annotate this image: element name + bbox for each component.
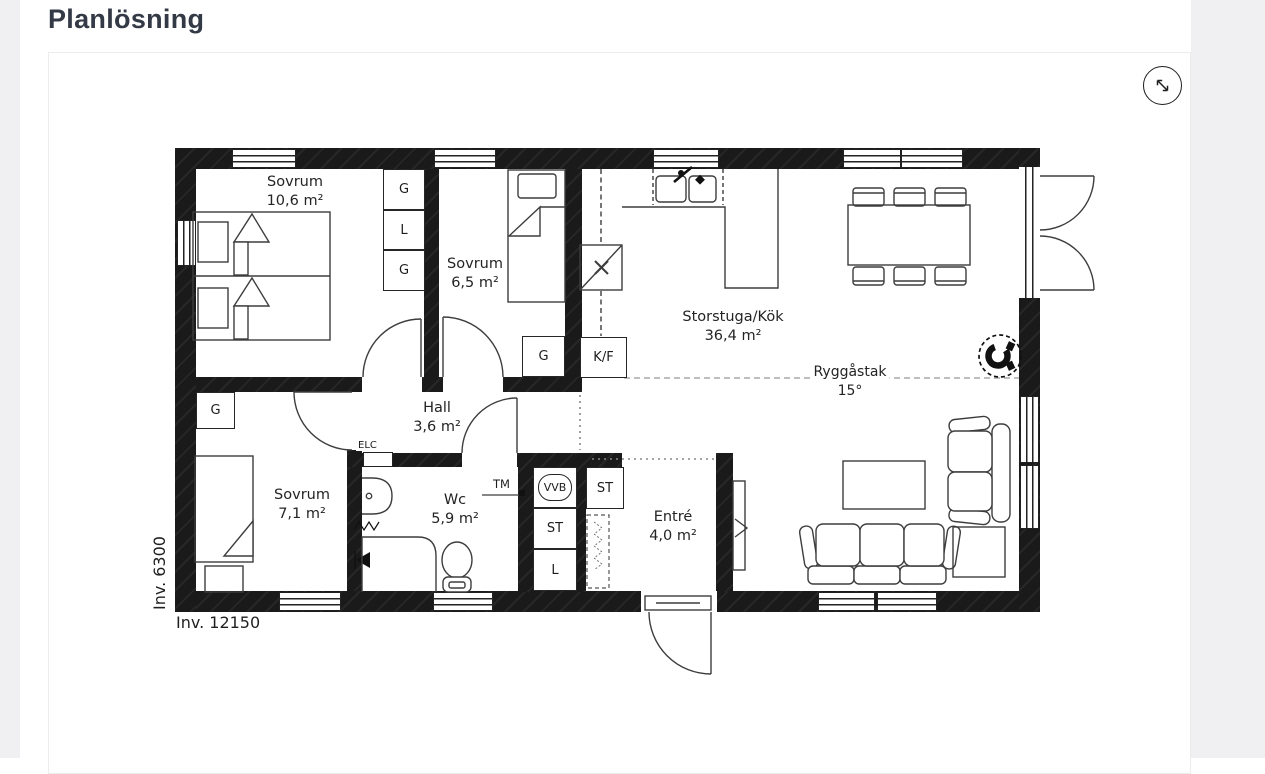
linen-cabinet: L [383, 210, 425, 250]
cabinet-label: G [399, 263, 409, 278]
bed-single [508, 170, 565, 302]
wardrobe-cabinet: G [383, 169, 425, 210]
ridge-name: Ryggåstak [810, 363, 889, 382]
room-area: 6,5 m² [447, 274, 503, 293]
room-name: Storstuga/Kök [682, 308, 783, 327]
room-name: Sovrum [274, 486, 330, 505]
entrance-door [645, 596, 711, 674]
room-name: Entré [649, 508, 697, 527]
cabinet-label: G [399, 182, 409, 197]
wardrobe-cabinet: G [383, 250, 425, 291]
room-label-sovrum-65: Sovrum 6,5 m² [447, 255, 503, 293]
cabinet-label: ST [547, 521, 563, 536]
room-label-hall: Hall 3,6 m² [413, 399, 461, 437]
room-area: 36,4 m² [682, 327, 783, 346]
cabinet-label: G [538, 349, 548, 364]
linen-cabinet: L [533, 549, 577, 591]
bed-single [195, 456, 253, 592]
dimension-width: Inv. 12150 [176, 613, 260, 632]
ridge-label: Ryggåstak 15° [810, 363, 889, 401]
room-area: 3,6 m² [413, 418, 461, 437]
dimension-depth: Inv. 6300 [150, 536, 169, 610]
room-label-entre: Entré 4,0 m² [649, 508, 697, 546]
storage-cabinet: ST [533, 508, 577, 549]
room-label-storstuga: Storstuga/Kök 36,4 m² [682, 308, 783, 346]
cabinet-label: K/F [593, 350, 613, 365]
water-heater-label: VVB [538, 474, 573, 501]
sofa-three-seat [799, 524, 961, 584]
door-arc [294, 317, 517, 453]
wardrobe-cabinet: G [522, 336, 565, 377]
room-name: Wc [431, 491, 479, 510]
ridge-angle: 15° [810, 382, 889, 401]
sofa-two-seat [948, 416, 1010, 525]
appliance-symbol [580, 245, 622, 290]
room-area: 5,9 m² [431, 510, 479, 529]
side-table [953, 527, 1005, 577]
floor-plan-drawing [0, 0, 1265, 758]
room-label-wc: Wc 5,9 m² [431, 491, 479, 529]
cabinet-label: ST [597, 481, 613, 496]
room-name: Sovrum [267, 173, 324, 192]
room-label-sovrum-71: Sovrum 7,1 m² [274, 486, 330, 524]
cabinet-label: L [400, 223, 407, 238]
room-name: Sovrum [447, 255, 503, 274]
cabinet-label: G [210, 403, 220, 418]
cabinet-label: L [551, 563, 558, 578]
washing-machine-label: TM [493, 477, 510, 491]
room-label-sovrum-106: Sovrum 10,6 m² [267, 173, 324, 211]
electrical-cabinet [363, 452, 393, 467]
electrical-cabinet-label: ELC [356, 440, 379, 451]
patio-doors [1040, 176, 1094, 290]
wardrobe-cabinet: G [196, 392, 235, 429]
bed-double [193, 212, 330, 340]
room-area: 4,0 m² [649, 527, 697, 546]
coffee-table [843, 461, 925, 509]
dining-set [848, 188, 970, 285]
fireplace-symbol [979, 335, 1021, 377]
fridge-freezer: K/F [580, 337, 627, 378]
storage-cabinet: ST [586, 467, 624, 509]
room-name: Hall [413, 399, 461, 418]
room-area: 7,1 m² [274, 505, 330, 524]
water-heater-cabinet: VVB [533, 467, 577, 508]
room-area: 10,6 m² [267, 192, 324, 211]
